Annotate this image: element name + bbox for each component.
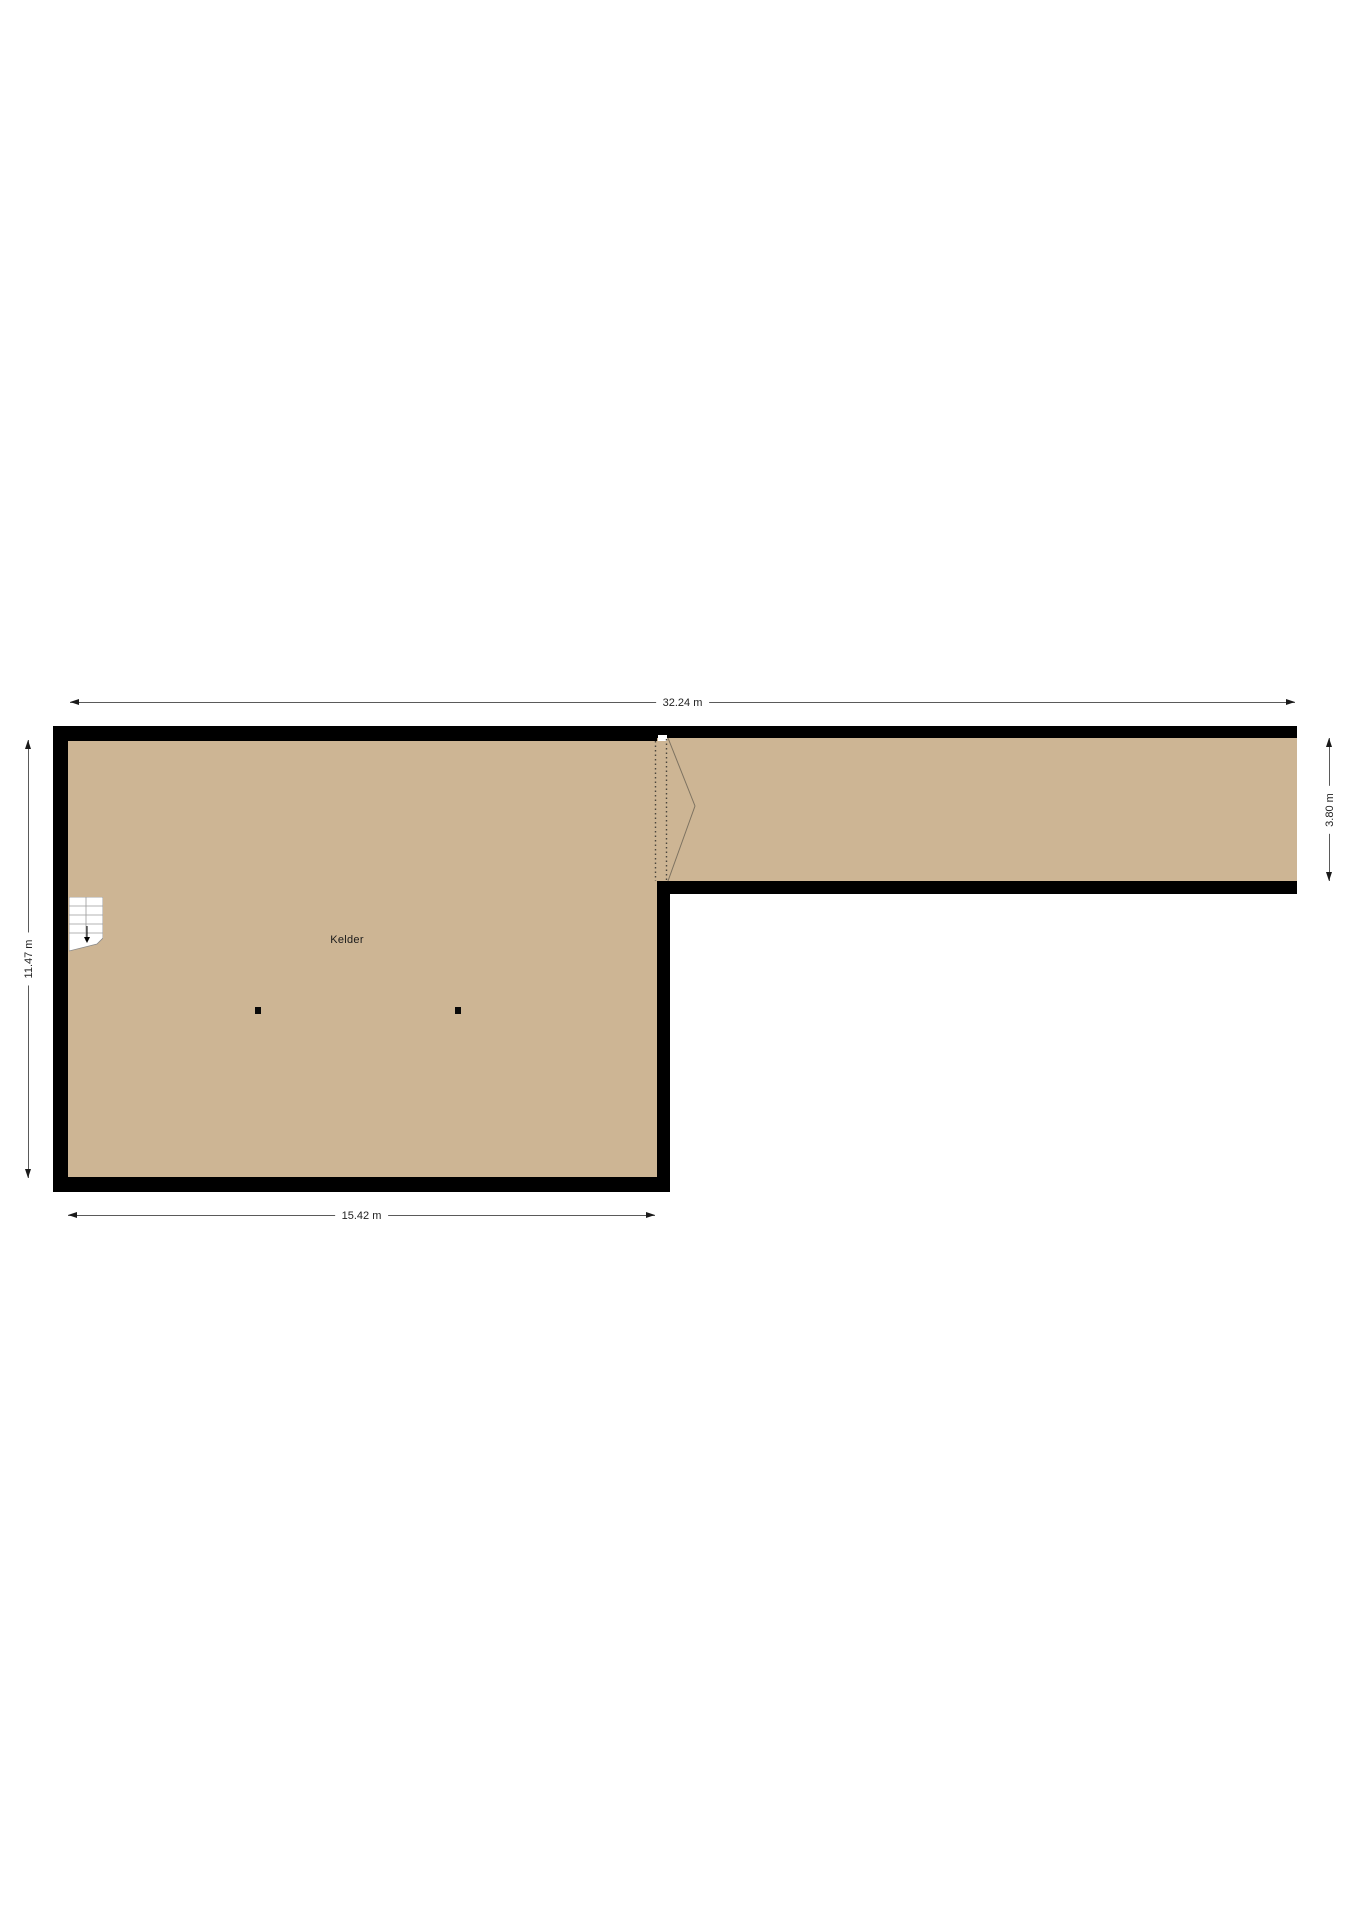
column-marker <box>455 1007 461 1014</box>
column-marker <box>255 1007 261 1014</box>
floorplan-canvas: Kelder 32.24 m 15.42 m 11.47 m 3.80 m <box>0 0 1358 1920</box>
room-name-label: Kelder <box>287 934 407 946</box>
dimension-main-room-width: 15.42 m <box>68 1212 655 1220</box>
dimension-overall-width: 32.24 m <box>70 699 1295 707</box>
dimension-main-room-depth: 11.47 m <box>25 740 33 1178</box>
dimension-label: 3.80 m <box>1324 786 1336 834</box>
dimension-corridor-depth: 3.80 m <box>1326 738 1334 881</box>
stairs-icon <box>69 897 103 953</box>
dimension-label: 32.24 m <box>656 697 710 709</box>
dimension-label: 11.47 m <box>23 933 35 986</box>
corridor-floor <box>657 738 1297 881</box>
room-corridor-opening <box>640 733 710 883</box>
main-room-floor <box>68 741 657 1177</box>
dimension-label: 15.42 m <box>335 1210 389 1222</box>
